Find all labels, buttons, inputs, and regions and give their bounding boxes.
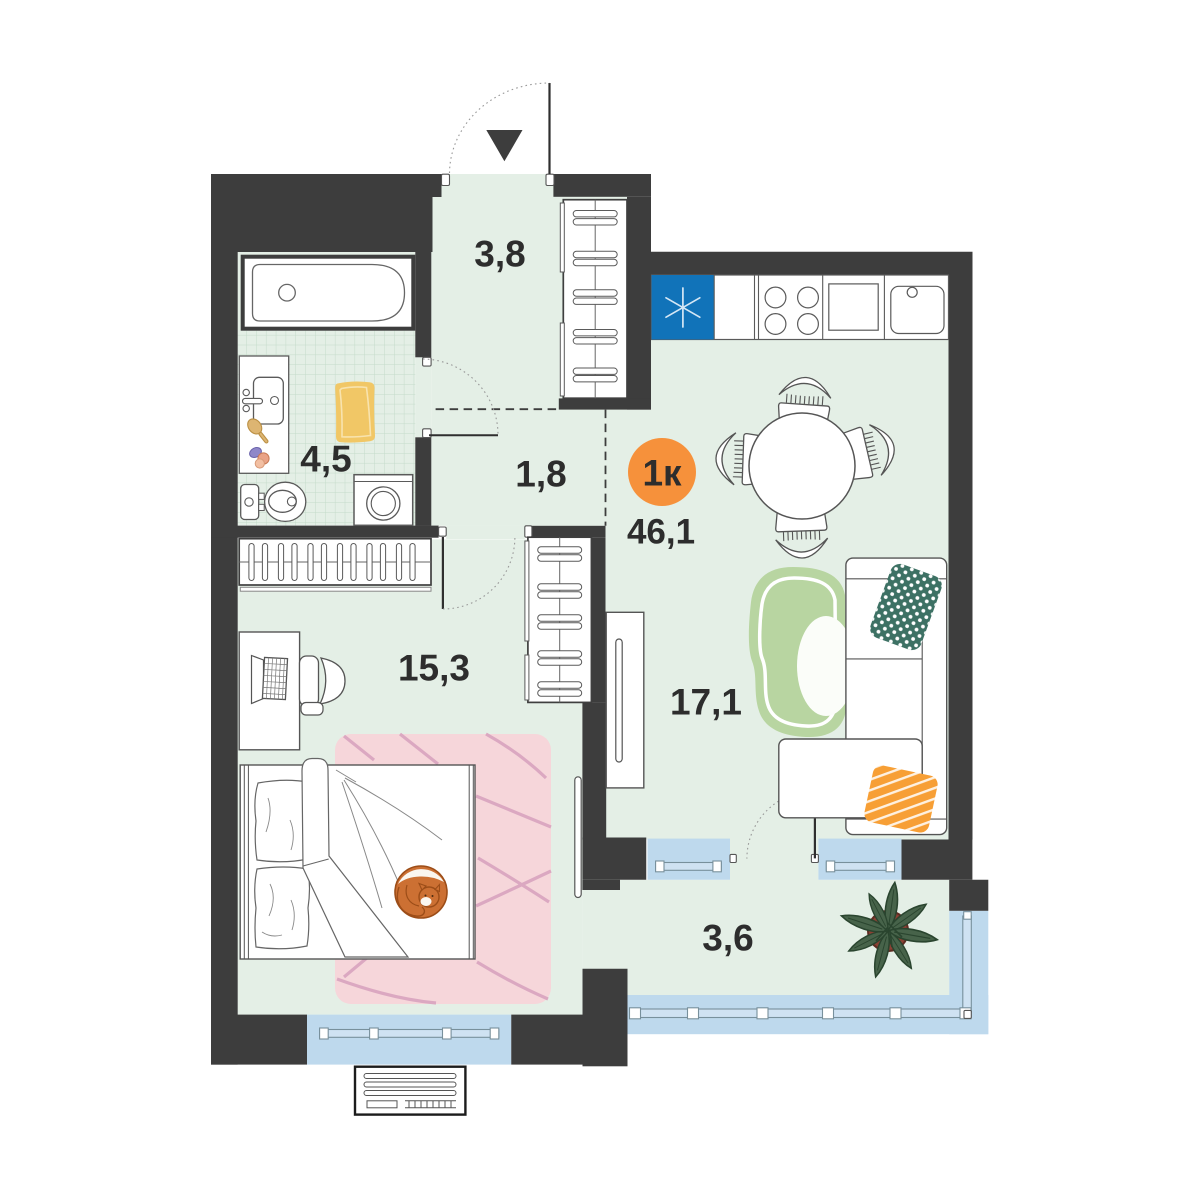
svg-text:3,8: 3,8 bbox=[474, 234, 525, 275]
svg-text:17,1: 17,1 bbox=[670, 682, 742, 723]
svg-text:3,6: 3,6 bbox=[702, 918, 753, 959]
svg-text:15,3: 15,3 bbox=[398, 648, 470, 689]
svg-text:1,8: 1,8 bbox=[515, 454, 566, 495]
svg-text:4,5: 4,5 bbox=[300, 439, 351, 480]
svg-text:46,1: 46,1 bbox=[627, 513, 695, 552]
svg-text:1к: 1к bbox=[642, 453, 682, 494]
